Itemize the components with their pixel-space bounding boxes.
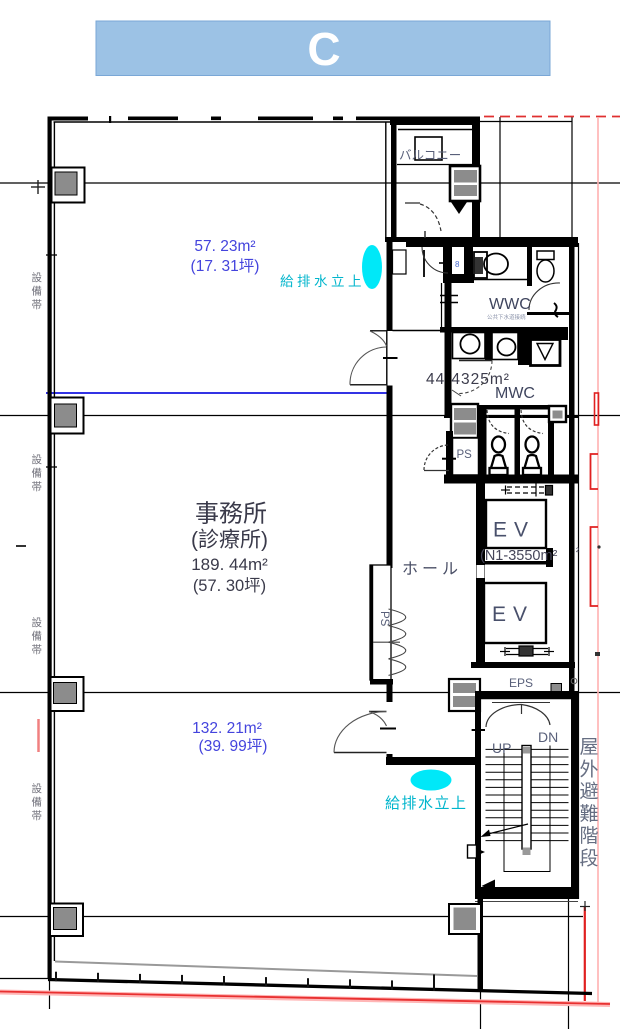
svg-text:(N1-3550m²: (N1-3550m²: [480, 548, 558, 564]
svg-text:難: 難: [579, 803, 598, 825]
svg-text:設: 設: [32, 616, 43, 629]
svg-text:帯: 帯: [32, 480, 43, 493]
svg-text:WWC: WWC: [489, 296, 531, 313]
svg-text:EV: EV: [492, 603, 534, 626]
svg-text:給排水立上: 給排水立上: [385, 795, 468, 812]
svg-text:事務所: 事務所: [195, 501, 267, 528]
svg-text:C: C: [307, 23, 340, 75]
svg-text:(17. 31坪): (17. 31坪): [191, 257, 260, 275]
svg-text:MWC: MWC: [495, 385, 535, 402]
svg-text:PS: PS: [378, 611, 390, 627]
svg-text:階: 階: [579, 825, 598, 847]
svg-text:給排水立上: 給排水立上: [280, 274, 365, 289]
svg-text:132. 21m²: 132. 21m²: [192, 720, 262, 737]
svg-text:備: 備: [32, 796, 43, 809]
svg-text:PS: PS: [457, 449, 473, 461]
svg-text:(診療所): (診療所): [191, 529, 268, 552]
svg-text:バルコニー: バルコニー: [399, 149, 461, 163]
svg-text:DN: DN: [538, 729, 558, 745]
svg-text:帯: 帯: [32, 809, 43, 822]
svg-text:(39. 99坪): (39. 99坪): [199, 737, 268, 755]
svg-text:設: 設: [32, 271, 43, 284]
svg-text:外: 外: [579, 758, 598, 780]
svg-text:設: 設: [32, 453, 43, 466]
svg-text:8: 8: [455, 260, 460, 269]
svg-text:設: 設: [32, 782, 43, 795]
svg-text:備: 備: [32, 630, 43, 643]
svg-text:57. 23m²: 57. 23m²: [194, 238, 255, 255]
svg-text:帯: 帯: [32, 298, 43, 311]
svg-text:(57. 30坪): (57. 30坪): [193, 576, 266, 595]
svg-text:避: 避: [579, 781, 598, 803]
svg-text:帯: 帯: [32, 643, 43, 656]
svg-text:UP: UP: [492, 740, 511, 756]
svg-text:備: 備: [32, 467, 43, 480]
svg-text:備: 備: [32, 285, 43, 298]
svg-text:EV: EV: [493, 519, 535, 542]
svg-text:公共下水道接続: 公共下水道接続: [487, 313, 526, 321]
svg-text:EPS: EPS: [509, 676, 533, 690]
svg-text:189. 44m²: 189. 44m²: [191, 555, 268, 574]
svg-text:屋: 屋: [579, 737, 598, 758]
svg-text:ホール: ホール: [402, 561, 462, 578]
svg-text:段: 段: [579, 848, 598, 870]
